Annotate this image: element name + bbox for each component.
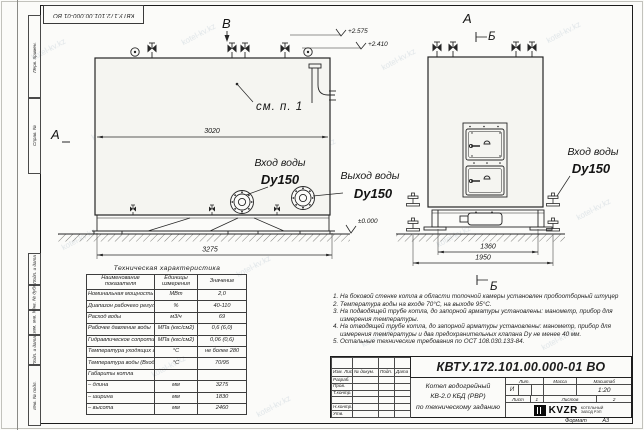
technical-notes: 1. На боковой стенке котла в области топ… [333, 293, 629, 346]
sheet-number: 1 [531, 396, 544, 403]
section-b-bottom-label: Б [490, 281, 499, 290]
side-jack-icon [407, 193, 420, 206]
title-block: Изм. Лист № докум. Подп. Дата Разраб. Пр… [330, 356, 632, 418]
format-value: А3 [602, 418, 609, 424]
frame-field-podp-data-2: Подп. и дата [28, 334, 41, 366]
company-name: КОТЕЛЬНЫЙ ЗАВОД РЭП [581, 406, 604, 415]
elevation-top-body: +2.410 [368, 41, 388, 48]
boiler-front-view [396, 42, 565, 242]
support-skid [92, 215, 335, 234]
boiler-side-view [58, 43, 350, 242]
spec-table-title: Техническая характеристика [86, 265, 248, 272]
spec-row: Рабочее давление водыМПа (кгс/см2)0,6 (6… [87, 324, 247, 335]
spec-header-row: Наименование показателя Единицы измерени… [87, 275, 247, 290]
level-mark-icon [346, 225, 356, 233]
title-block-signature-grid: Изм. Лист № докум. Подп. Дата Разраб. Пр… [331, 357, 411, 418]
kvzr-logo [534, 405, 546, 416]
mass-header: Масса [544, 378, 578, 385]
dim-body-length: 3020 [204, 128, 220, 135]
air-valve-icon [433, 42, 442, 57]
title-block-doc-number: КВТУ.172.101.00.000-01 ВО [410, 357, 631, 378]
inlet-side-dn: Dy150 [261, 172, 300, 187]
spec-row: Диапазон рабочего регулирования%40-110 [87, 301, 247, 312]
callout-see-item-1: см. п. 1 [256, 101, 303, 113]
ground-hatch [58, 234, 350, 242]
note-item: 2. Температура воды на входе 70°С, на вы… [333, 301, 629, 309]
spec-row: – длинамм3275 [87, 381, 247, 392]
inlet-front-dn: Dy150 [572, 161, 611, 176]
note-item: 1. На боковой стенке котла в области топ… [333, 293, 629, 301]
frame-field-vzam-inv: Взам. инв. № [28, 309, 41, 336]
section-a-right-label: А [462, 11, 472, 26]
sheets-total: 2 [597, 396, 631, 403]
view-b-label: В [222, 16, 231, 31]
sheet-trim-line [17, 0, 18, 430]
air-valve-icon [228, 43, 237, 58]
spec-col-header: Единицы измерения [155, 275, 198, 290]
note-item: 5. Остальные технические требования по О… [333, 338, 629, 346]
elevation-top-valve: +2.575 [348, 28, 368, 35]
spec-row: – высотамм2460 [87, 403, 247, 414]
burner [468, 213, 502, 225]
technical-drawing: 3020 3275 см. п. 1 В А +2.575 +2.410 [40, 5, 631, 290]
outlet-side-label: Выход воды [340, 170, 399, 182]
format-label: Формат [565, 418, 587, 424]
spec-row: Расход водым3/ч69 [87, 312, 247, 323]
inlet-side-label: Вход воды [255, 157, 306, 169]
front-base-frame [424, 210, 552, 230]
scale-value: 1:20 [577, 385, 631, 396]
dim-base-width: 1360 [480, 244, 496, 251]
air-valve-icon [449, 42, 458, 57]
format-strip: Формат А3 [565, 418, 609, 424]
elevation-ground: ±0.000 [358, 218, 378, 225]
air-valve-icon [528, 42, 537, 57]
spec-row: Габариты котла [87, 369, 247, 380]
air-valve-icon [512, 42, 521, 57]
engineering-drawing-sheet: kotel-kv.kz kotel-kv.kz kotel-kv.kz kote… [0, 0, 644, 430]
spec-table: Наименование показателя Единицы измерени… [86, 274, 247, 415]
note-item: 4. На отводящей трубе котла, до запорной… [333, 323, 629, 338]
lit-header: Лит. [506, 378, 544, 385]
title-block-product-title: Котел водогрейный КВ-2.0 КБД (РВР) по те… [410, 378, 505, 417]
mass-value-cell [544, 385, 578, 396]
kvzr-logo-text: KVZR [549, 405, 578, 416]
title-block-right: Лит. Масса Масштаб И 1:20 Лист 1 Листов … [505, 378, 631, 417]
company-logo-row: KVZR КОТЕЛЬНЫЙ ЗАВОД РЭП [506, 403, 631, 417]
frame-field-inv-podl: Инв. № подл. [28, 364, 41, 426]
spec-col-header: Наименование показателя [87, 275, 155, 290]
air-valve-icon [241, 43, 250, 58]
lit-value-cell: И [506, 385, 544, 396]
side-jack-icon [547, 218, 560, 231]
spec-row: Температура воды (Вход/Выход)°С70/95 [87, 358, 247, 369]
spec-col-header: Значение [198, 275, 247, 290]
note-item: 3. На подводящей трубе котла, до запорно… [333, 308, 629, 323]
spec-row: – ширинамм1830 [87, 392, 247, 403]
spec-row: Температура уходящих газов°Сне более 280 [87, 346, 247, 357]
side-jack-icon [407, 218, 420, 231]
dim-overall-width: 1950 [475, 255, 491, 262]
lit-value: И [506, 387, 518, 393]
sheet-label: Лист [506, 396, 531, 403]
inlet-front-label: Вход воды [568, 146, 619, 158]
ground-hatch [396, 234, 565, 242]
spec-table-block: Техническая характеристика Наименование … [86, 265, 248, 415]
air-valve-icon [148, 43, 157, 58]
scale-header: Масштаб [577, 378, 631, 385]
spec-row: Номинальная мощностьМВт2,0 [87, 290, 247, 301]
sheets-label: Листов [544, 396, 598, 403]
air-valve-icon [281, 43, 290, 58]
dim-overall-length: 3275 [202, 247, 218, 254]
section-a-left-label: А [50, 127, 60, 142]
section-b-top-label: Б [488, 31, 497, 43]
spec-row: Гидравлическое сопротивление котлаМПа (к… [87, 335, 247, 346]
outlet-side-dn: Dy150 [354, 186, 393, 201]
water-inlet-flange [231, 191, 254, 214]
water-outlet-flange [292, 187, 315, 210]
